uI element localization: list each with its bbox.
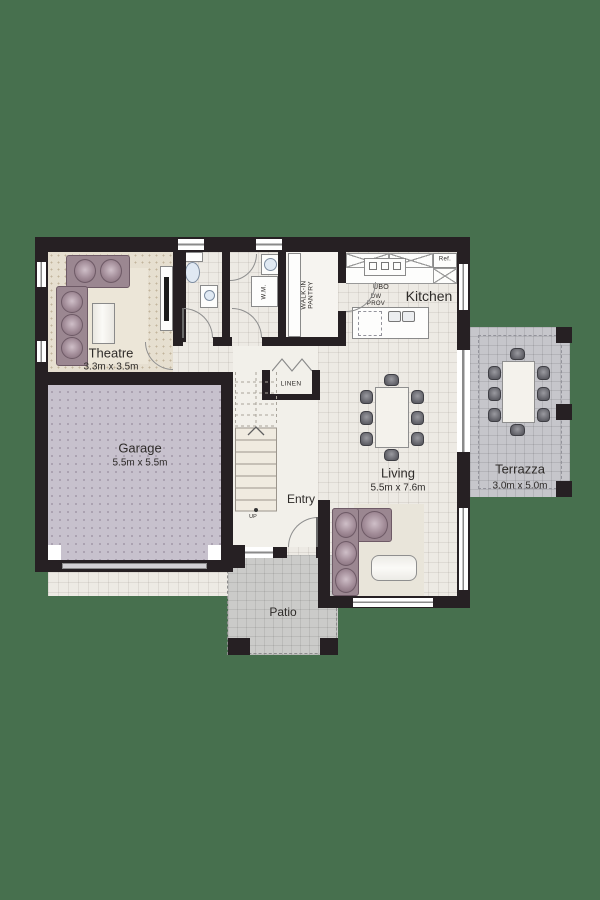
dining-chair: [411, 411, 424, 425]
dining-chair: [411, 432, 424, 446]
wall-hall: [173, 337, 183, 346]
burner: [369, 262, 377, 270]
stairs-start-dot: [254, 508, 258, 512]
window: [37, 341, 46, 362]
outdoor-chair: [537, 387, 550, 401]
window: [37, 262, 46, 287]
window: [245, 547, 273, 558]
wall-top: [35, 237, 470, 252]
wall-hall: [262, 337, 286, 346]
terrazza-dims: 3.0m x 5.0m: [492, 480, 547, 492]
sofa-cushion: [74, 259, 96, 283]
dining-chair: [411, 390, 424, 404]
sofa-cushion: [335, 512, 357, 538]
patio-label: Patio: [269, 606, 296, 620]
pantry-shelf: [288, 253, 301, 337]
terrazza-post: [556, 481, 572, 497]
toilet-icon: [185, 262, 200, 283]
outdoor-chair: [488, 408, 501, 422]
burner: [393, 262, 401, 270]
burner: [381, 262, 389, 270]
pantry-label-line2: PANTRY: [308, 281, 315, 309]
basin-icon: [204, 290, 215, 301]
dining-table: [375, 387, 409, 448]
sofa-cushion: [335, 568, 357, 593]
dining-chair: [384, 449, 399, 461]
garage-door: [62, 563, 207, 569]
outdoor-chair: [537, 366, 550, 380]
theatre-label: Theatre: [89, 347, 134, 362]
sofa-cushion: [61, 314, 83, 336]
sofa-cushion: [335, 541, 357, 566]
wall-laundry-pantry: [278, 252, 286, 338]
patio-post: [228, 638, 250, 655]
dishwasher-provision: [358, 311, 382, 336]
wall-front-segment: [316, 547, 330, 558]
theatre-sofa-left: [56, 286, 88, 366]
outdoor-chair: [510, 348, 525, 360]
wall-front-segment: [273, 547, 287, 558]
sliding-glass-door: [457, 350, 470, 452]
wall-pantry-bottom: [286, 337, 346, 346]
tv-screen: [164, 277, 169, 321]
floor-plan: W.M. WALK-IN PANTRY UBO Ref. DW PROV: [0, 0, 600, 900]
garage-label: Garage: [118, 442, 161, 457]
door-leaf: [182, 308, 184, 338]
window: [459, 264, 468, 310]
wall-powder-laundry: [222, 252, 230, 338]
dining-chair: [360, 432, 373, 446]
stairs: [235, 372, 277, 512]
entry-label: Entry: [287, 493, 315, 507]
cooktop-icon: [364, 258, 406, 276]
stairs-up-label: UP: [249, 514, 257, 520]
patio-post: [320, 638, 338, 655]
dishwasher-label-line2: PROV: [367, 301, 385, 307]
sofa-cushion: [100, 259, 122, 283]
front-post: [228, 545, 245, 568]
pantry-label-line1: WALK-IN: [301, 281, 308, 310]
linen-label: LINEN: [281, 380, 302, 387]
theatre-sofa-top: [66, 255, 130, 288]
terrazza-post: [556, 327, 572, 343]
sofa-cushion: [361, 511, 388, 539]
wall-pantry-kitchen: [338, 252, 346, 283]
sofa-cushion: [61, 337, 83, 359]
wall-garage-top: [35, 372, 233, 385]
outdoor-chair: [488, 387, 501, 401]
washing-machine-label: W.M.: [262, 285, 269, 300]
window: [353, 598, 433, 607]
theatre-ottoman: [92, 303, 115, 344]
sofa-cushion: [61, 291, 83, 313]
garage-door-jamb: [48, 545, 61, 560]
door-leaf-front: [316, 517, 318, 547]
terrazza-post: [556, 404, 572, 420]
sink-icon: [388, 311, 401, 322]
garage-door-jamb: [208, 545, 221, 560]
terrazza-label: Terrazza: [495, 463, 545, 478]
dining-chair: [360, 390, 373, 404]
outdoor-chair: [488, 366, 501, 380]
fridge-label: Ref.: [439, 257, 451, 264]
theatre-dims: 3.3m x 3.5m: [83, 361, 138, 373]
outdoor-table: [502, 361, 535, 423]
living-dims: 5.5m x 7.6m: [370, 482, 425, 494]
wall-garage-right: [221, 372, 233, 572]
outdoor-chair: [510, 424, 525, 436]
outdoor-chair: [537, 408, 550, 422]
coffee-table: [371, 555, 417, 581]
laundry-tub-bowl: [264, 258, 277, 271]
wall-hall: [213, 337, 232, 346]
dining-chair: [384, 374, 399, 386]
dining-chair: [360, 411, 373, 425]
overhead-cupboard: [433, 268, 457, 284]
linen-bifold-door: [272, 357, 312, 372]
garage-dims: 5.5m x 5.5m: [112, 457, 167, 469]
pantry-label: WALK-IN PANTRY: [301, 281, 316, 310]
kitchen-label: Kitchen: [406, 288, 453, 304]
living-label: Living: [381, 467, 415, 482]
window: [178, 239, 204, 250]
window: [256, 239, 282, 250]
sink-icon: [402, 311, 415, 322]
window: [459, 508, 468, 590]
wall-left: [35, 237, 48, 572]
